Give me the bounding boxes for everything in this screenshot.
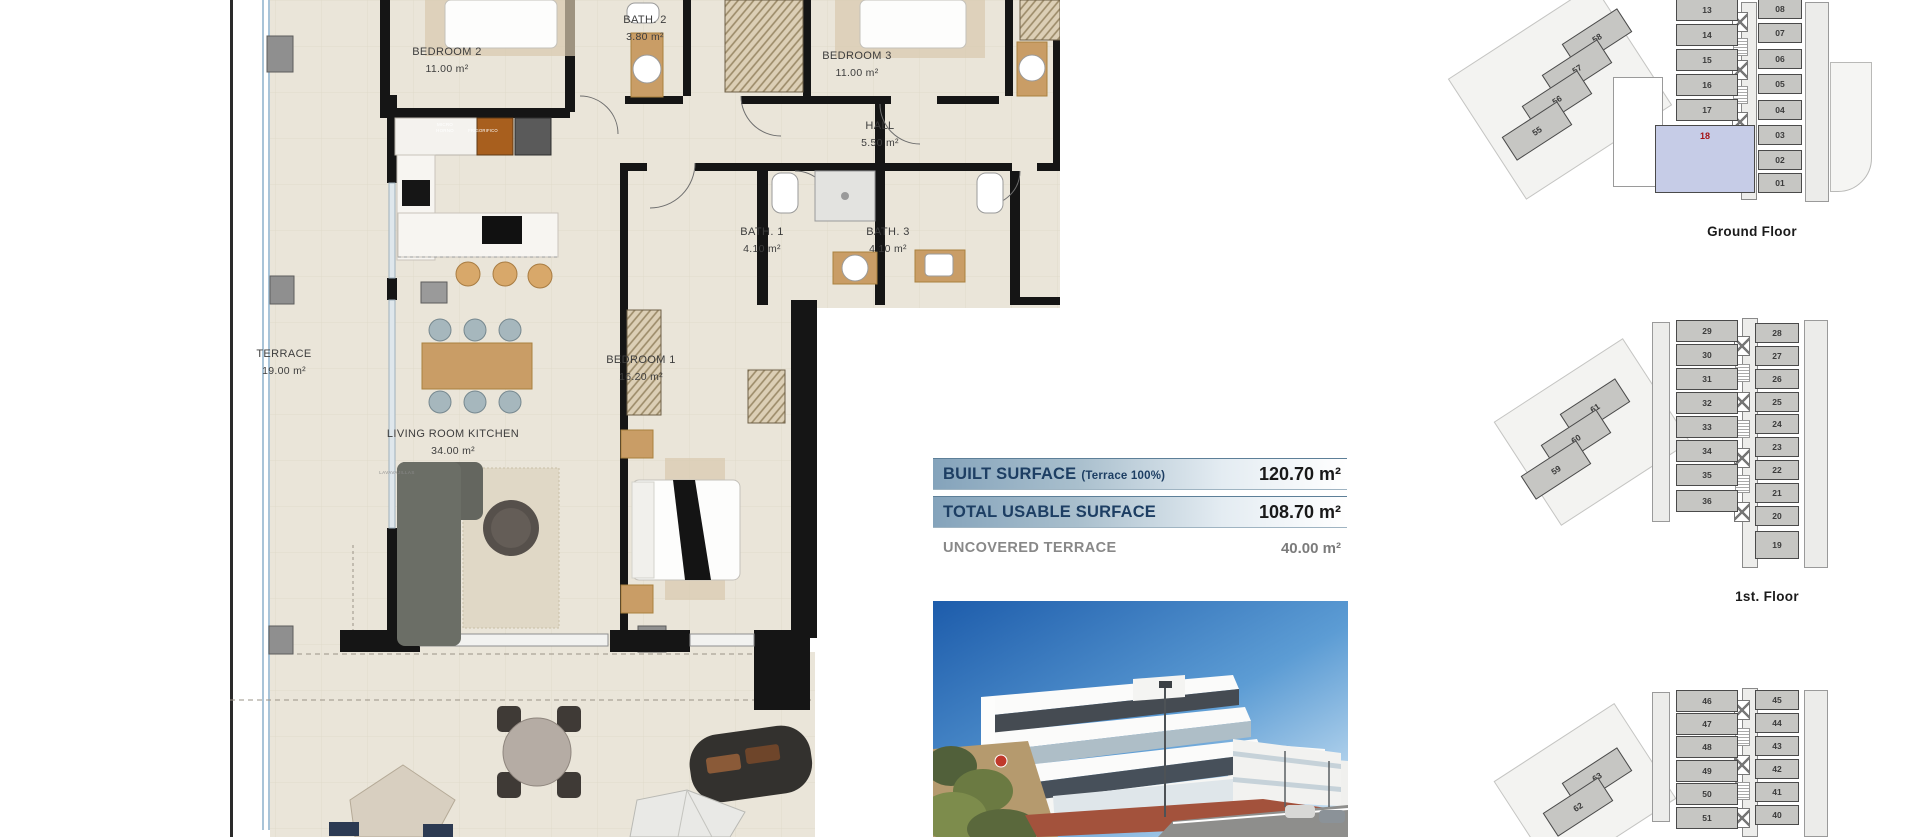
unit-cell: 01 — [1758, 173, 1802, 193]
unit-cell: 14 — [1676, 24, 1738, 46]
room-label-bedroom1: BEDROOM 116.20 m² — [606, 352, 676, 386]
unit-cell: 28 — [1755, 323, 1799, 343]
ensuite-vanity — [1017, 42, 1047, 96]
unit-cell: 24 — [1755, 414, 1799, 434]
first-balcony-column-left — [1652, 322, 1670, 522]
room-label-hall: HALL5.50 m² — [861, 118, 899, 152]
built-surface-note: (Terrace 100%) — [1081, 470, 1165, 482]
dishwasher-label: LAVAVAJILLAS — [379, 470, 414, 475]
unit-cell: 51 — [1676, 807, 1738, 829]
unit-cell: 26 — [1755, 369, 1799, 389]
highlighted-unit-cell: 18 — [1655, 125, 1755, 193]
ground-balcony-column — [1805, 2, 1829, 202]
unit-cell: 33 — [1676, 416, 1738, 438]
unit-cell: 08 — [1758, 0, 1802, 19]
unit-cell: 23 — [1755, 437, 1799, 457]
unit-cell: 22 — [1755, 460, 1799, 480]
surface-table: BUILT SURFACE(Terrace 100%) 120.70 m² TO… — [933, 459, 1347, 569]
room-label-bath1: BATH. 14.10 m² — [740, 224, 784, 258]
unit-cell: 17 — [1676, 99, 1738, 121]
first-balcony-column — [1804, 320, 1828, 568]
building-photo — [933, 601, 1348, 837]
uncovered-terrace-value: 40.00 m² — [1281, 540, 1341, 557]
room-label-bath2: BATH. 23.80 m² — [623, 12, 667, 46]
uncovered-terrace-label: UNCOVERED TERRACE — [943, 540, 1117, 556]
unit-cell: 50 — [1676, 783, 1738, 805]
fridge-label: FRIGORIFICO — [465, 128, 501, 133]
unit-cell: 15 — [1676, 49, 1738, 71]
unit-cell: 29 — [1676, 320, 1738, 342]
built-surface-label: BUILT SURFACE — [943, 465, 1076, 483]
unit-cell: 44 — [1755, 713, 1799, 733]
plan-edge-glazing — [230, 0, 270, 837]
unit-cell: 30 — [1676, 344, 1738, 366]
unit-cell: 31 — [1676, 368, 1738, 390]
second-balcony-column — [1804, 690, 1828, 837]
unit-cell: 43 — [1755, 736, 1799, 756]
room-label-bedroom3: BEDROOM 311.00 m² — [822, 48, 892, 82]
unit-cell: 35 — [1676, 464, 1738, 486]
living-room-furniture — [397, 462, 559, 646]
unit-cell: 27 — [1755, 346, 1799, 366]
room-label-bedroom2: BEDROOM 211.00 m² — [412, 44, 482, 78]
unit-cell: 40 — [1755, 805, 1799, 825]
unit-cell: 06 — [1758, 49, 1802, 69]
unit-cell: 45 — [1755, 690, 1799, 710]
unit-cell: 48 — [1676, 736, 1738, 758]
unit-cell: 46 — [1676, 690, 1738, 712]
usable-surface-row: TOTAL USABLE SURFACE 108.70 m² — [933, 497, 1347, 527]
usable-surface-value: 108.70 m² — [1259, 502, 1341, 523]
unit-cell: 16 — [1676, 74, 1738, 96]
unit-cell: 34 — [1676, 440, 1738, 462]
unit-cell: 02 — [1758, 150, 1802, 170]
unit-cell: 03 — [1758, 125, 1802, 145]
unit-cell: 07 — [1758, 23, 1802, 43]
unit-cell: 21 — [1755, 483, 1799, 503]
unit-cell: 13 — [1676, 0, 1738, 21]
first-floor-label: 1st. Floor — [1735, 589, 1799, 604]
built-surface-row: BUILT SURFACE(Terrace 100%) 120.70 m² — [933, 459, 1347, 489]
room-label-bath3: BATH. 34.10 m² — [866, 224, 910, 258]
room-label-terrace: TERRACE19.00 m² — [256, 346, 311, 380]
unit-cell: 42 — [1755, 759, 1799, 779]
brochure-page: BEDROOM 211.00 m² BATH. 23.80 m² BEDROOM… — [0, 0, 1920, 837]
unit-cell: 25 — [1755, 392, 1799, 412]
built-surface-value: 120.70 m² — [1259, 464, 1341, 485]
unit-cell: 36 — [1676, 490, 1738, 512]
unit-cell: 05 — [1758, 74, 1802, 94]
room-label-living: LIVING ROOM KITCHEN34.00 m² — [387, 426, 519, 460]
ground-outline-corner — [1830, 62, 1872, 192]
unit-cell: 19 — [1755, 531, 1799, 559]
unit-cell: 49 — [1676, 760, 1738, 782]
unit-cell: 32 — [1676, 392, 1738, 414]
second-balcony-column-left — [1652, 692, 1670, 822]
ground-floor-label: Ground Floor — [1707, 224, 1797, 239]
unit-cell: 41 — [1755, 782, 1799, 802]
dining-set — [422, 319, 532, 413]
micro-oven-label: MICRO HORNO — [430, 122, 460, 133]
unit-cell: 04 — [1758, 100, 1802, 120]
usable-surface-label: TOTAL USABLE SURFACE — [943, 503, 1156, 522]
uncovered-terrace-row: UNCOVERED TERRACE 40.00 m² — [933, 535, 1347, 561]
unit-cell: 47 — [1676, 713, 1738, 735]
unit-cell: 20 — [1755, 506, 1799, 526]
